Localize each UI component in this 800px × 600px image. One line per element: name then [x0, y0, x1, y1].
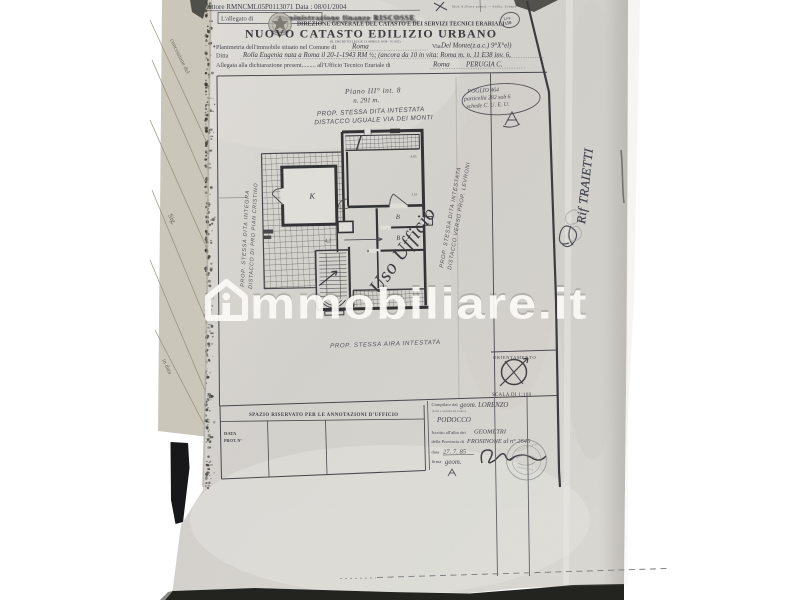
svg-text:mmobiliare.it: mmobiliare.it	[250, 280, 588, 329]
